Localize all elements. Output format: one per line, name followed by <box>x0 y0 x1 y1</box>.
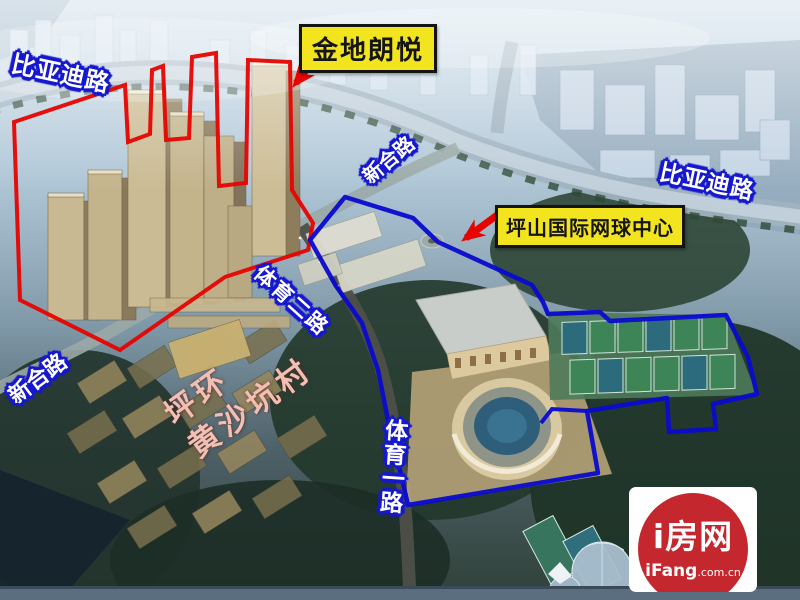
gemdale-boundary <box>14 53 313 350</box>
tennis-boundary-spur <box>541 409 587 423</box>
callout-tennis-center: 坪山国际网球中心 <box>495 205 685 248</box>
aerial-map: 比亚迪路 比亚迪路 新合路 新合路 体育二路 体育一路 坪环 黄沙坑村 金地朗悦… <box>0 0 800 600</box>
logo-domain-bold: iFang <box>645 561 697 581</box>
callout-gemdale: 金地朗悦 <box>299 24 437 73</box>
logo-domain-rest: .com.cn <box>697 566 741 579</box>
logo-domain-text: iFang.com.cn <box>629 561 757 581</box>
watermark-logo: i房网 iFang.com.cn <box>629 487 757 592</box>
logo-brand-text: i房网 <box>629 510 757 558</box>
